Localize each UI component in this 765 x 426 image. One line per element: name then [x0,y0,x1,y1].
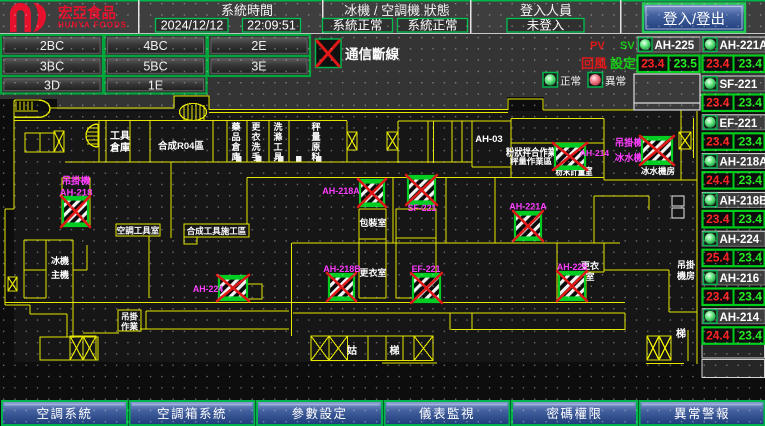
svg-text:工: 工 [273,142,282,152]
svg-text:登入人員: 登入人員 [520,3,572,18]
svg-text:冰水機房: 冰水機房 [641,166,675,176]
svg-text:SF-221: SF-221 [720,79,758,91]
svg-text:AH-218A: AH-218A [720,157,765,169]
svg-text:22:09:51: 22:09:51 [247,19,296,33]
svg-text:通信斷線: 通信斷線 [345,46,399,62]
svg-text:AH-214: AH-214 [580,148,610,158]
svg-text:冰機 / 空調機 狀態: 冰機 / 空調機 狀態 [344,3,449,18]
svg-text:秤量作業區: 秤量作業區 [510,156,552,166]
svg-text:23.4: 23.4 [739,57,763,71]
svg-text:系統正常: 系統正常 [407,19,457,33]
svg-text:合成R04區: 合成R04區 [158,140,204,152]
svg-text:衣: 衣 [251,131,260,142]
svg-text:工具: 工具 [110,130,130,142]
svg-text:倉庫: 倉庫 [109,141,130,154]
svg-text:AH-214: AH-214 [720,312,760,324]
svg-text:品: 品 [231,132,240,142]
svg-text:系統正常: 系統正常 [332,19,382,33]
svg-text:冰水機: 冰水機 [615,152,644,164]
svg-text:AH-221A: AH-221A [509,202,547,212]
svg-text:主機: 主機 [51,269,69,280]
svg-text:23.4: 23.4 [739,134,763,148]
svg-text:吊掛機: 吊掛機 [62,175,91,187]
svg-text:洗: 洗 [273,121,282,132]
svg-text:作業: 作業 [121,322,139,332]
svg-text:機房: 機房 [677,270,695,281]
svg-text:空調工具室: 空調工具室 [117,226,160,236]
svg-text:正常: 正常 [560,75,581,88]
svg-text:4BC: 4BC [143,39,167,53]
svg-text:空調箱系統: 空調箱系統 [157,406,227,421]
svg-text:AH-218A: AH-218A [322,186,360,196]
svg-text:藥: 藥 [230,121,241,132]
svg-text:AH-218B: AH-218B [323,264,361,274]
svg-text:23.4: 23.4 [739,290,763,304]
svg-text:參數設定: 參數設定 [291,406,347,421]
svg-text:3D: 3D [44,78,60,92]
svg-text:吊掛: 吊掛 [677,259,696,270]
svg-text:原: 原 [311,142,320,152]
svg-text:吊掛機: 吊掛機 [615,137,644,149]
svg-text:量: 量 [311,131,320,142]
svg-text:23.4: 23.4 [706,290,730,304]
svg-text:AH-221A: AH-221A [720,40,765,52]
svg-text:24.4: 24.4 [706,328,730,342]
svg-text:SV: SV [620,40,635,52]
svg-text:AH-224: AH-224 [193,284,223,294]
svg-text:23.4: 23.4 [739,96,763,110]
svg-text:姑: 姑 [346,344,357,357]
svg-text:5BC: 5BC [143,60,167,74]
svg-text:梯: 梯 [390,344,400,357]
svg-text:登入/登出: 登入/登出 [663,11,725,28]
svg-text:吊掛: 吊掛 [121,312,139,322]
svg-text:洗: 洗 [251,141,260,152]
svg-text:23.4: 23.4 [706,212,730,226]
svg-text:AH-03: AH-03 [475,134,502,145]
svg-text:23.4: 23.4 [739,328,763,342]
svg-text:更衣室: 更衣室 [359,267,386,278]
svg-text:儀表監視: 儀表監視 [419,406,475,421]
svg-text:滌: 滌 [273,131,282,142]
svg-text:宏亞食品: 宏亞食品 [58,4,116,22]
svg-text:25.4: 25.4 [706,251,730,265]
svg-text:23.4: 23.4 [641,57,665,71]
svg-text:冰機: 冰機 [51,255,69,266]
svg-text:梯: 梯 [676,327,686,340]
svg-text:3E: 3E [251,60,266,74]
svg-text:23.4: 23.4 [706,96,730,110]
svg-text:EF-221: EF-221 [720,118,758,130]
svg-text:23.4: 23.4 [706,57,730,71]
svg-text:AH-225: AH-225 [655,40,695,52]
svg-text:倉: 倉 [230,141,241,152]
svg-text:AH-218B: AH-218B [720,195,765,207]
svg-text:合成工具施工區: 合成工具施工區 [186,226,247,236]
svg-text:23.4: 23.4 [739,212,763,226]
svg-text:PV: PV [590,40,605,52]
svg-text:2024/12/12: 2024/12/12 [161,19,224,33]
svg-text:SF-221: SF-221 [408,203,437,213]
svg-text:3BC: 3BC [40,60,64,74]
svg-text:設定: 設定 [610,56,636,71]
svg-text:空調系統: 空調系統 [36,407,92,421]
svg-text:EF-221: EF-221 [412,264,441,274]
svg-text:2E: 2E [251,39,266,53]
svg-text:HUNYA FOODS: HUNYA FOODS [58,21,127,30]
svg-text:AH-225: AH-225 [557,262,587,272]
svg-text:24.4: 24.4 [706,173,730,187]
svg-text:23.5: 23.5 [674,57,698,71]
svg-text:23.4: 23.4 [706,134,730,148]
svg-text:2BC: 2BC [40,39,64,53]
svg-text:秤: 秤 [311,121,320,132]
svg-text:異常: 異常 [605,75,626,88]
svg-text:更: 更 [251,122,261,132]
svg-text:AH-216: AH-216 [720,273,760,285]
svg-text:1E: 1E [148,78,163,92]
svg-text:系統時間: 系統時間 [221,3,273,18]
svg-text:未登入: 未登入 [527,18,565,33]
svg-text:回風: 回風 [581,56,607,71]
svg-text:AH-224: AH-224 [720,234,760,246]
svg-text:包裝室: 包裝室 [358,217,386,228]
svg-text:23.4: 23.4 [739,173,763,187]
svg-text:密碼權限: 密碼權限 [546,406,602,421]
svg-text:23.4: 23.4 [739,251,763,265]
svg-text:異常警報: 異常警報 [674,406,730,421]
